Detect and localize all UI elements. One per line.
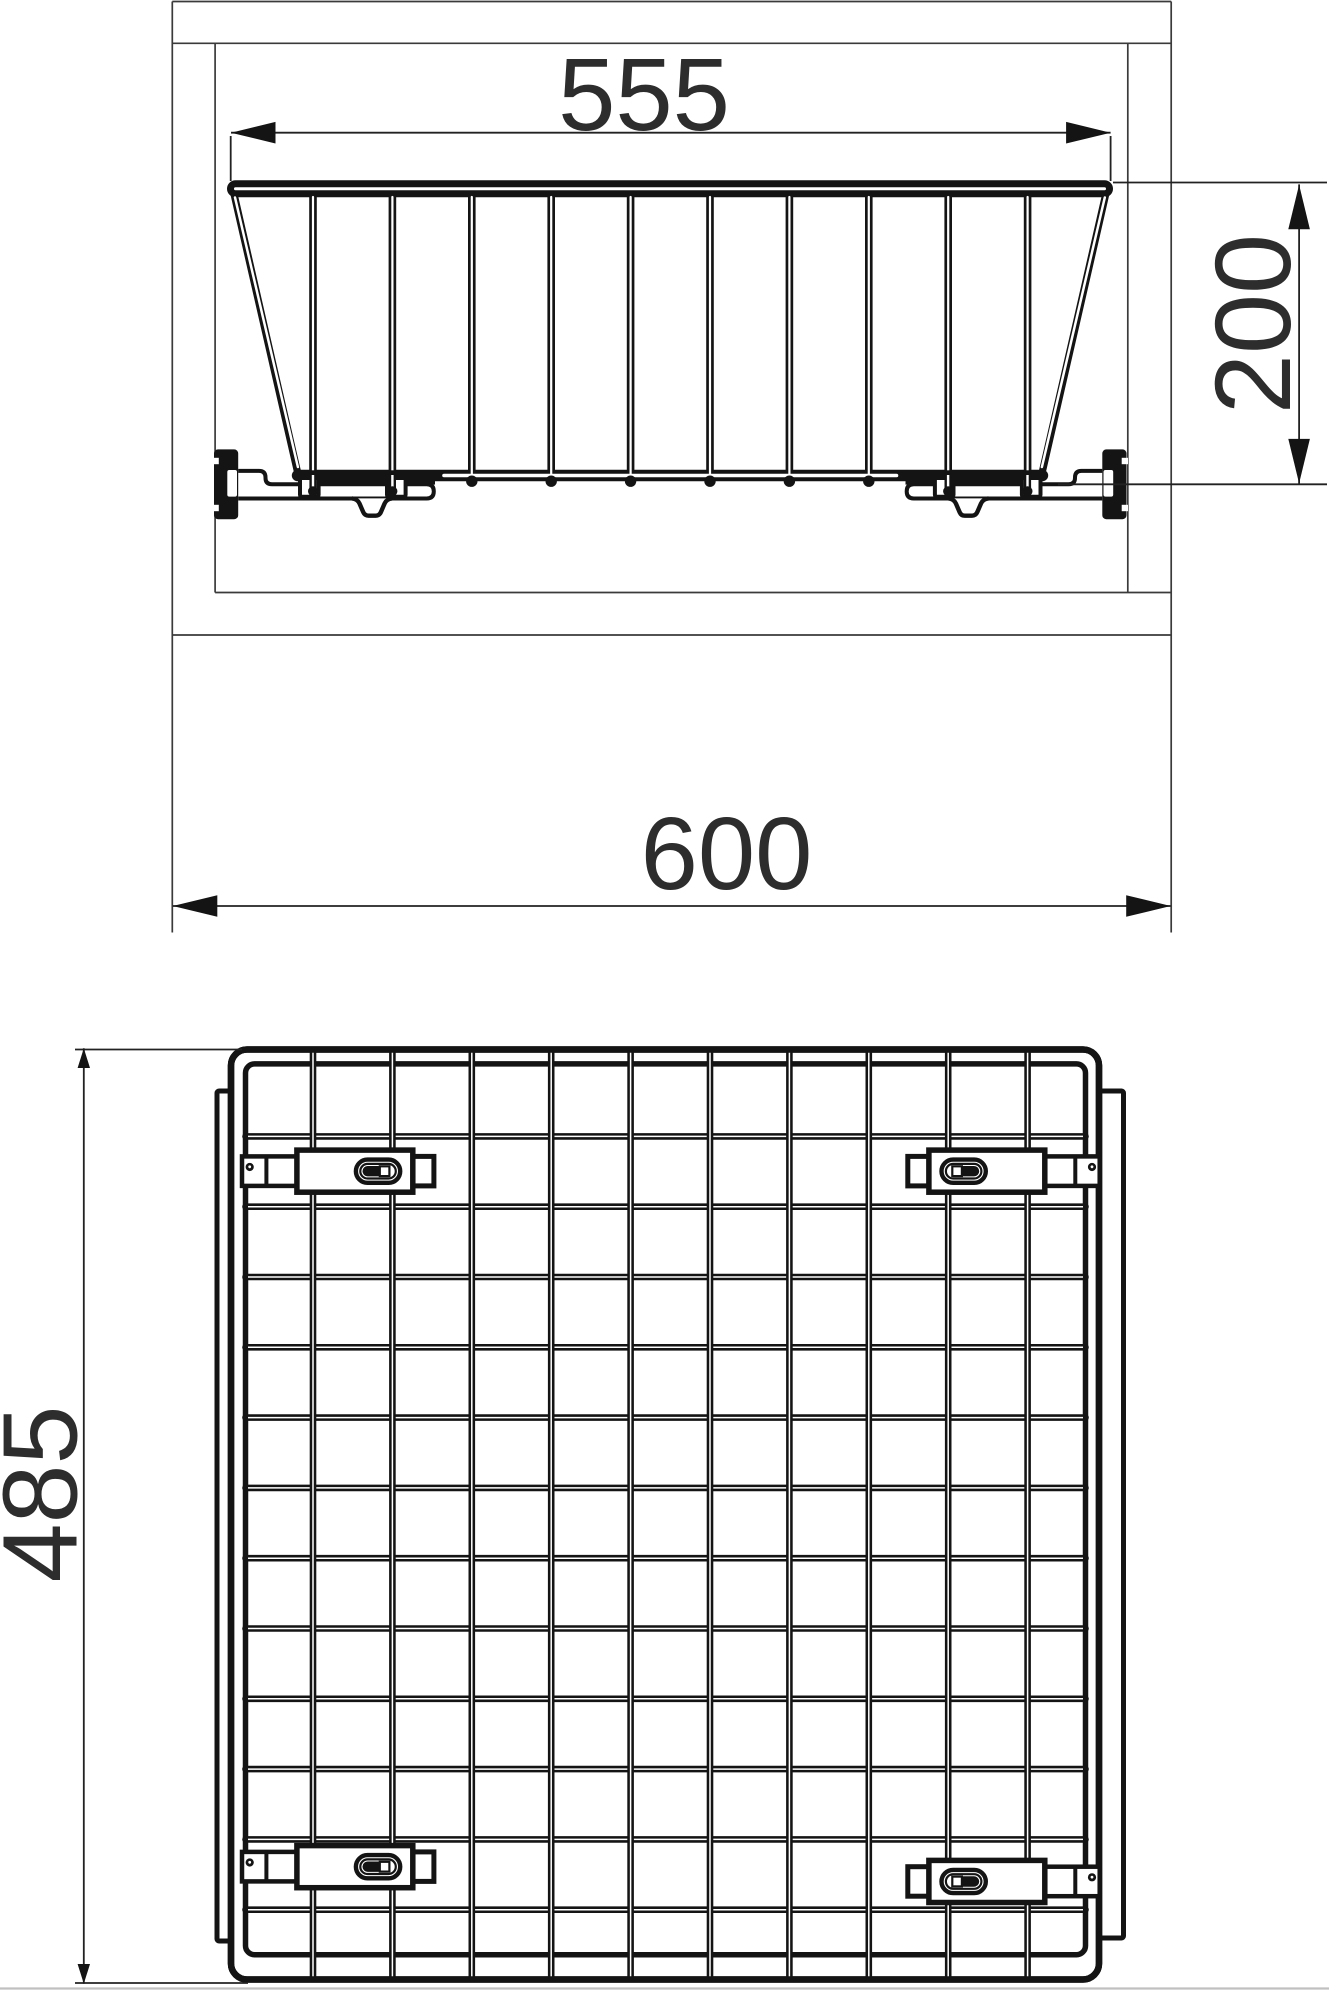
svg-text:485: 485: [0, 1406, 100, 1583]
svg-text:555: 555: [558, 37, 730, 152]
svg-text:600: 600: [641, 796, 813, 911]
svg-text:200: 200: [1192, 234, 1313, 414]
